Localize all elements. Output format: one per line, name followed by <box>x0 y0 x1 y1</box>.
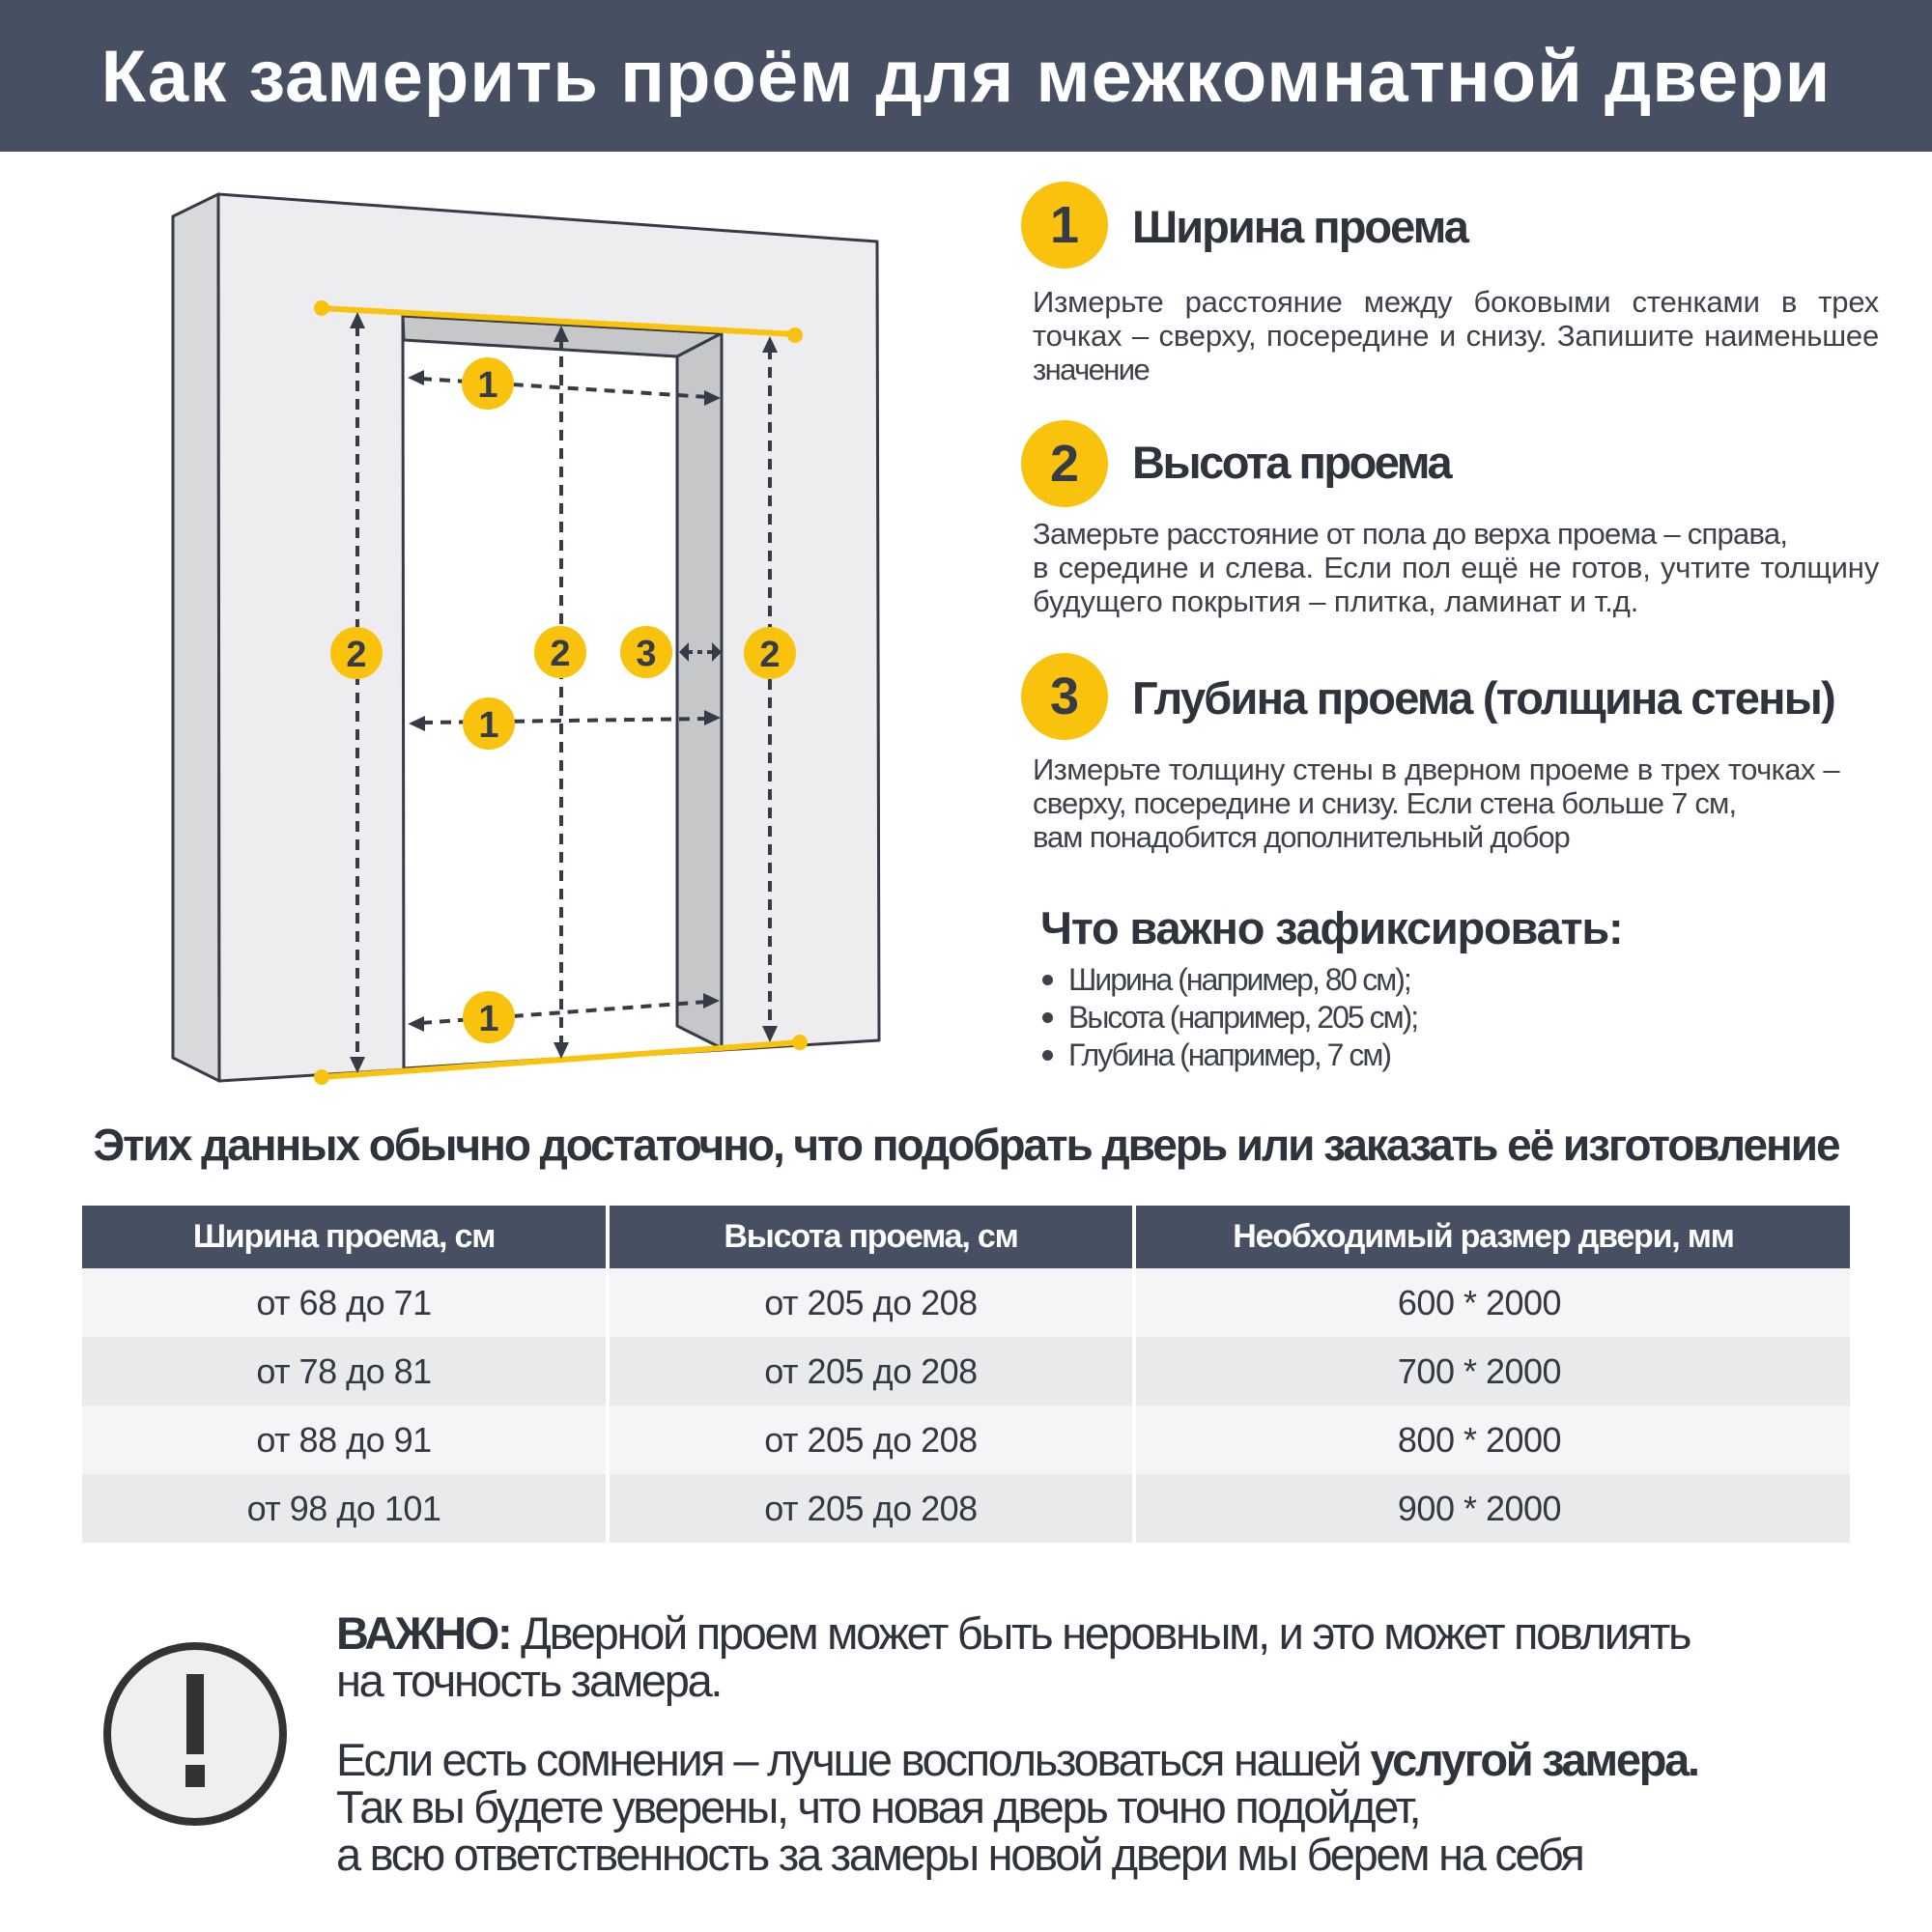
svg-text:1: 1 <box>478 705 498 746</box>
svg-text:2: 2 <box>550 634 570 674</box>
svg-text:3: 3 <box>636 634 656 674</box>
svg-text:2: 2 <box>346 635 366 675</box>
svg-text:2: 2 <box>759 635 780 675</box>
svg-text:1: 1 <box>477 365 497 406</box>
svg-text:1: 1 <box>478 999 498 1039</box>
